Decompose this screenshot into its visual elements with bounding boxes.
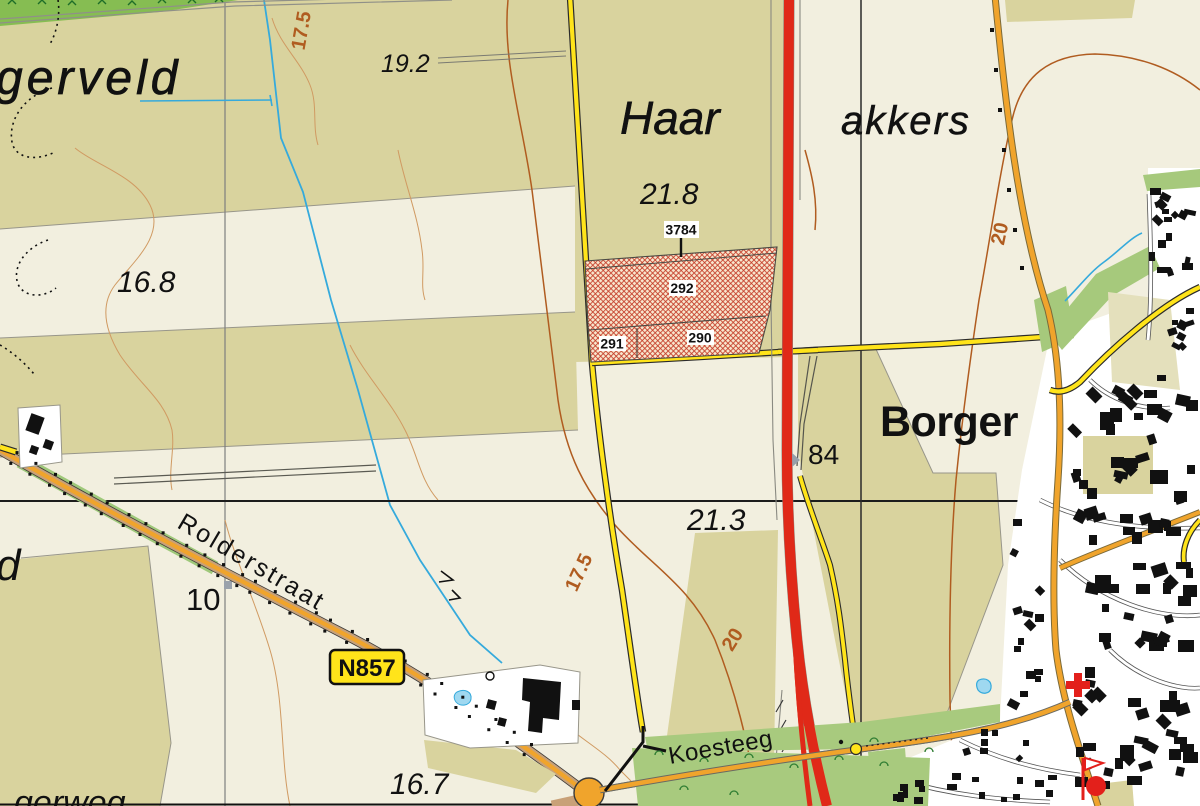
svg-text:akkers: akkers bbox=[841, 99, 971, 143]
svg-text:10: 10 bbox=[186, 582, 220, 617]
svg-text:gerveld: gerveld bbox=[0, 52, 181, 105]
svg-text:N857: N857 bbox=[338, 655, 395, 682]
svg-text:292: 292 bbox=[670, 280, 694, 296]
svg-text:Borger: Borger bbox=[880, 398, 1019, 446]
svg-text:16.7: 16.7 bbox=[390, 768, 450, 801]
svg-text:291: 291 bbox=[600, 336, 624, 352]
svg-text:290: 290 bbox=[688, 330, 712, 346]
svg-text:gerweg: gerweg bbox=[14, 784, 126, 806]
svg-text:84: 84 bbox=[808, 439, 839, 470]
svg-text:3784: 3784 bbox=[665, 222, 696, 238]
svg-text:d: d bbox=[0, 541, 22, 590]
svg-text:21.3: 21.3 bbox=[686, 504, 746, 537]
svg-text:20: 20 bbox=[987, 221, 1013, 247]
svg-text:19.2: 19.2 bbox=[381, 50, 430, 78]
svg-text:16.8: 16.8 bbox=[117, 266, 176, 299]
svg-text:Haar: Haar bbox=[620, 92, 721, 144]
svg-text:21.8: 21.8 bbox=[639, 178, 699, 211]
